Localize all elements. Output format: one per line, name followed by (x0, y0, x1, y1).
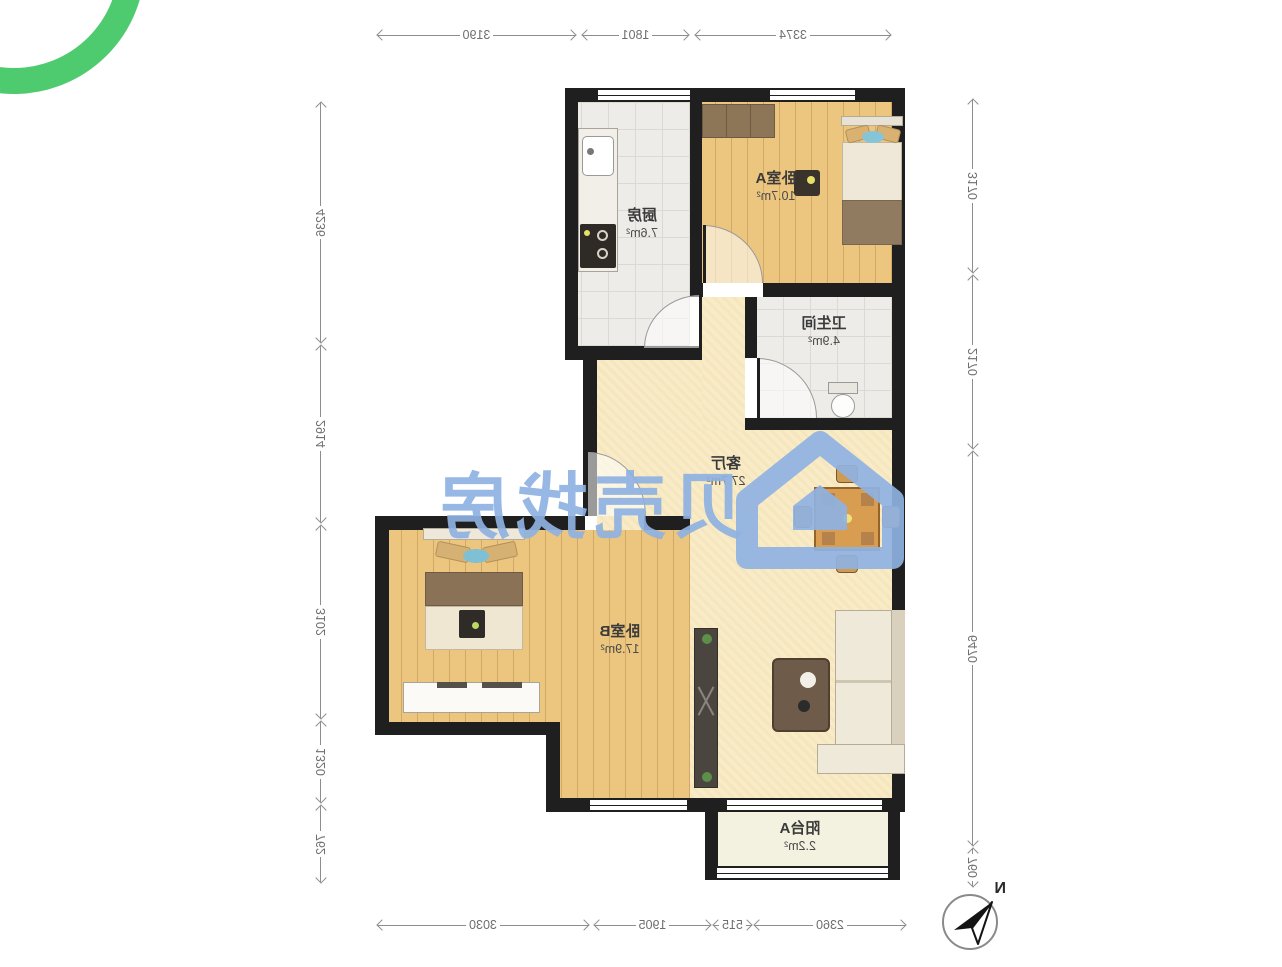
wall-balcony-corner-2 (705, 866, 717, 880)
laptop-light-icon (472, 622, 479, 629)
dimension-side-3102: 3102 (312, 526, 330, 718)
label-kitchen: 厨房 7.6m² (594, 207, 690, 241)
wall-bedroom-b-step (375, 722, 560, 735)
bed-a-sheet (842, 142, 902, 202)
wall-kitchen-inner (690, 88, 702, 295)
wall-kitchen-outer (565, 88, 578, 360)
label-bedroom-a: 卧室A 10.7m² (728, 170, 824, 204)
door-leaf-bedroom-a (703, 225, 706, 283)
dimension-bottom-515: 515 (714, 918, 751, 932)
bed-a-duvet (842, 200, 902, 245)
bench-item-1 (482, 682, 522, 688)
door-leaf-bathroom (757, 358, 760, 418)
plant-icon-1 (702, 634, 712, 644)
floor-corridor (702, 297, 745, 430)
coffee-table (772, 658, 830, 732)
dimension-side-762: 762 (312, 806, 330, 882)
dimension-bottom-1905: 1905 (595, 918, 710, 932)
wall-kitchen-bottom (565, 346, 702, 360)
toilet-bowl (831, 394, 855, 418)
bed-b-duvet (425, 572, 523, 606)
bench-item-2 (437, 682, 467, 688)
stove-knob-icon (584, 230, 590, 236)
floorplan-screenshot: 卧室A 10.7m² 厨房 7.6m² 卫生间 4.9m² 客厅 27.7m² … (0, 0, 1282, 967)
dimension-top-1801: 1801 (583, 28, 688, 42)
label-balcony: 阳台A 2.2m² (752, 820, 848, 854)
plant-icon-2 (702, 772, 712, 782)
floor-hall (597, 360, 702, 430)
wall-bedroom-b-bottom-1 (687, 798, 718, 812)
dimension-side-2914: 2914 (312, 346, 330, 522)
dimension-side-3170: 3170 (964, 100, 982, 272)
bed-a-headboard (841, 116, 903, 126)
wall-bedroom-b-bottom-2 (546, 798, 590, 812)
window-balcony-outer (717, 866, 888, 880)
window-bedroom-b (590, 798, 687, 812)
kitchen-sink (582, 136, 614, 176)
burner-icon-2 (597, 248, 608, 259)
sofa-backrest (891, 610, 905, 750)
wall-bedroom-b-right (375, 516, 389, 735)
wall-balcony-corner-1 (888, 866, 900, 880)
dimension-side-1320: 1320 (312, 722, 330, 802)
watermark-text: 贝壳找房 (432, 448, 744, 553)
toilet-tank (828, 382, 858, 394)
door-leaf-kitchen (699, 295, 702, 348)
wall-balcony-top-1 (882, 798, 905, 812)
dimension-top-3374: 3374 (696, 28, 890, 42)
dimension-side-2170: 2170 (964, 276, 982, 448)
wall-bathroom-side (745, 297, 757, 358)
brand-ring-icon (0, 0, 145, 94)
sofa-chaise (817, 744, 905, 774)
wall-bedroom-a-bottom (763, 283, 905, 297)
window-kitchen (598, 88, 690, 102)
bed-a-cushion (862, 131, 884, 143)
floor-bedroom-b-ext (560, 722, 690, 798)
wardrobe-bedroom-a (702, 104, 775, 138)
window-bedroom-a (770, 88, 855, 102)
dimension-bottom-2360: 2360 (755, 918, 905, 932)
beike-house-icon (735, 430, 905, 570)
coffee-table-tray (800, 672, 816, 688)
wall-bathroom-bottom (745, 418, 905, 430)
window-balcony-door (727, 798, 882, 812)
floorplan-canvas: 卧室A 10.7m² 厨房 7.6m² 卫生间 4.9m² 客厅 27.7m² … (0, 0, 1282, 967)
dimension-top-3190: 3190 (378, 28, 575, 42)
label-bedroom-b: 卧室B 17.9m² (572, 623, 668, 657)
dimension-side-4236: 4236 (312, 103, 330, 342)
dimension-side-6470: 6470 (964, 452, 982, 845)
wall-balcony-left (888, 812, 900, 868)
faucet-icon (587, 148, 594, 155)
compass-north-label: N (994, 880, 1006, 898)
tv-console (694, 628, 718, 788)
coffee-table-bowl (798, 700, 810, 712)
label-bathroom: 卫生间 4.9m² (776, 315, 872, 349)
wall-balcony-top-2 (718, 798, 727, 812)
dimension-bottom-3030: 3030 (378, 918, 588, 932)
